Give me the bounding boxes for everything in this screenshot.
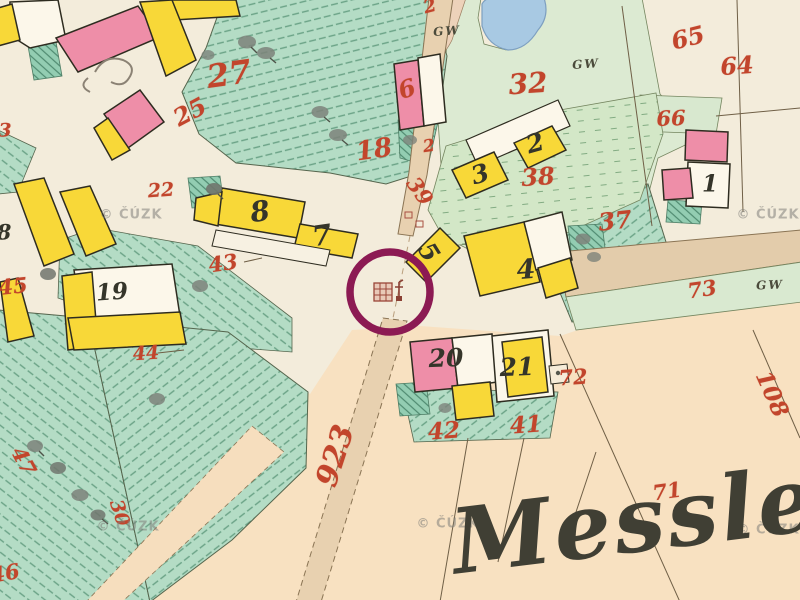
label-layer: 2527618223265646639383773721082243454447… [0, 0, 800, 600]
parcel-72: 72 [558, 366, 589, 389]
parcel-18: 18 [354, 135, 393, 166]
watermark-1: © ČÚZK [99, 209, 162, 222]
parcel-27: 27 [205, 55, 254, 93]
house-21: 21 [499, 354, 535, 380]
parcel-66: 66 [656, 107, 686, 129]
parcel-47: 47 [8, 443, 40, 479]
gw-label-2: GW [572, 57, 601, 71]
parcel-41: 41 [509, 412, 543, 437]
house-20: 20 [428, 345, 464, 371]
parcel-42: 42 [427, 418, 461, 443]
parcel-2-small: 2 [422, 138, 436, 156]
watermark-5: © ČÚZK [736, 524, 799, 537]
parcel-64: 64 [720, 53, 755, 79]
cadastral-map: 2527618223265646639383773721082243454447… [0, 0, 800, 600]
parcel-25: 25 [170, 94, 211, 131]
parcel-43: 43 [207, 251, 239, 276]
parcel-73: 73 [686, 277, 718, 302]
road-number-923: 923 [312, 422, 360, 491]
parcel-6: 6 [395, 75, 418, 103]
watermark-3: © ČÚZK [416, 518, 479, 531]
parcel-30: 30 [106, 497, 132, 528]
parcel-46: 46 [0, 560, 21, 586]
parcel-44: 44 [132, 344, 160, 365]
place-name: Messler [447, 447, 800, 587]
gw-label-1: GW [433, 24, 462, 38]
parcel-22: 22 [147, 181, 175, 202]
parcel-39: 39 [403, 173, 437, 209]
house-8-edge: 8 [0, 222, 11, 243]
parcel-71: 71 [651, 479, 683, 504]
parcel-65: 65 [669, 22, 707, 53]
house-4: 4 [516, 256, 537, 284]
parcel-3-edge: 3 [0, 122, 12, 141]
parcel-37: 37 [597, 207, 633, 234]
parcel-45: 45 [0, 274, 29, 298]
watermark-2: © ČÚZK [736, 209, 799, 222]
gw-label-3: GW [756, 279, 784, 292]
parcel-2-top: 2 [422, 0, 439, 17]
house-7: 7 [310, 221, 333, 251]
house-1: 1 [702, 173, 718, 196]
watermark-4: © ČÚZK [96, 521, 159, 534]
house-2: 2 [523, 129, 547, 158]
parcel-38: 38 [521, 164, 556, 190]
parcel-108: 108 [752, 367, 793, 420]
house-19: 19 [95, 279, 129, 304]
house-3: 3 [468, 160, 492, 189]
house-8: 8 [248, 197, 271, 227]
parcel-32: 32 [508, 69, 549, 100]
house-5: 5 [414, 238, 444, 266]
